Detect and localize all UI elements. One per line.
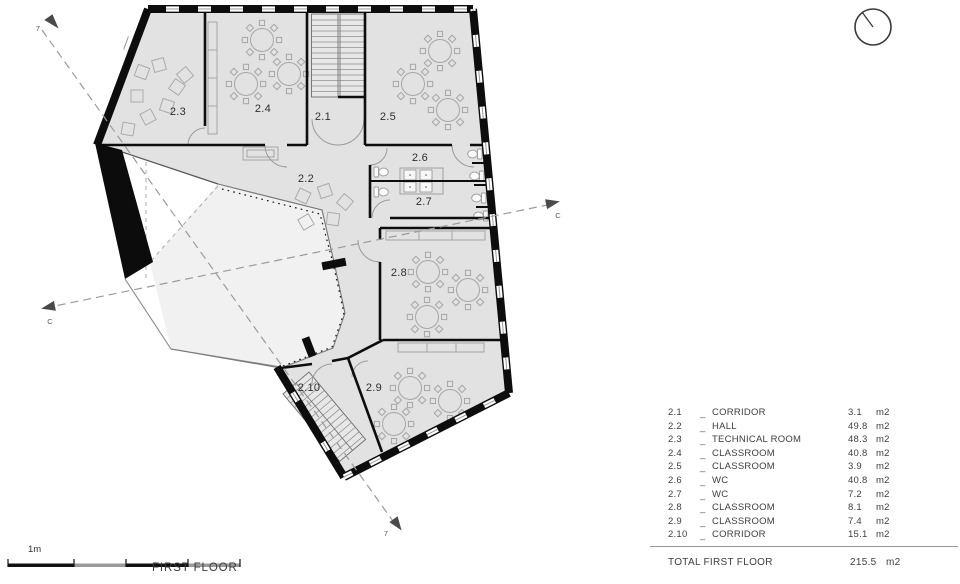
legend-room-name: CLASSROOM	[712, 515, 848, 529]
legend-separator: _	[700, 421, 712, 435]
legend-row: 2.8_CLASSROOM8.1m2	[650, 501, 958, 515]
legend-separator: _	[700, 434, 712, 448]
legend-room-name: WC	[712, 488, 848, 502]
room-label-2-2: 2.2	[298, 173, 314, 185]
legend-room-area: 7.2	[848, 488, 876, 502]
legend-separator: _	[700, 448, 712, 462]
legend-separator: _	[700, 502, 712, 516]
legend-room-number: 2.3	[668, 433, 700, 447]
room-label-2-5: 2.5	[380, 111, 396, 123]
legend-area-unit: m2	[876, 406, 958, 420]
legend-room-name: CLASSROOM	[712, 447, 848, 461]
legend-room-name: CLASSROOM	[712, 501, 848, 515]
legend-row: 2.10_CORRIDOR15.1m2	[650, 528, 958, 542]
section-arrow-7-top	[44, 14, 58, 28]
legend-separator: _	[700, 516, 712, 530]
legend-room-area: 40.8	[848, 474, 876, 488]
north-indicator-icon	[855, 9, 891, 45]
legend-row: 2.5_CLASSROOM3.9m2	[650, 460, 958, 474]
section-label-c-right: C	[555, 211, 561, 220]
legend-row: 2.6_WC40.8m2	[650, 474, 958, 488]
legend-area-unit: m2	[876, 515, 958, 529]
legend-room-number: 2.5	[668, 460, 700, 474]
legend-room-name: CORRIDOR	[712, 528, 848, 542]
legend-room-area: 15.1	[848, 528, 876, 542]
section-arrow-c-left	[41, 301, 56, 311]
legend-separator: _	[700, 489, 712, 503]
drawing-title: FIRST FLOOR	[152, 562, 238, 574]
room-label-2-4: 2.4	[255, 103, 271, 115]
legend-separator: _	[700, 475, 712, 489]
room-label-2-10: 2.10	[298, 382, 321, 394]
section-arrow-c-right	[545, 199, 560, 209]
legend-separator: _	[700, 461, 712, 475]
section-label-7-top: 7	[36, 24, 40, 33]
legend-room-name: TECHNICAL ROOM	[712, 433, 848, 447]
legend-room-name: HALL	[712, 420, 848, 434]
legend-row: 2.4_CLASSROOM40.8m2	[650, 447, 958, 461]
legend-total-row: TOTAL FIRST FLOOR 215.5 m2	[650, 556, 958, 570]
scale-label: 1m	[28, 544, 41, 555]
room-label-2-1: 2.1	[315, 111, 331, 123]
total-area: 215.5	[850, 556, 877, 570]
legend-area-unit: m2	[876, 488, 958, 502]
legend-room-name: CLASSROOM	[712, 460, 848, 474]
legend-separator: _	[700, 529, 712, 543]
legend-separator: _	[700, 407, 712, 421]
legend-room-number: 2.4	[668, 447, 700, 461]
legend-room-number: 2.6	[668, 474, 700, 488]
legend-row: 2.2_HALL49.8m2	[650, 420, 958, 434]
legend-room-number: 2.2	[668, 420, 700, 434]
legend-room-area: 7.4	[848, 515, 876, 529]
legend-room-area: 48.3	[848, 433, 876, 447]
legend-area-unit: m2	[876, 528, 958, 542]
legend-area-unit: m2	[876, 474, 958, 488]
legend-row: 2.3_TECHNICAL ROOM48.3m2	[650, 433, 958, 447]
legend-area-unit: m2	[876, 460, 958, 474]
room-label-2-6: 2.6	[412, 152, 428, 164]
legend-room-area: 49.8	[848, 420, 876, 434]
legend-area-unit: m2	[876, 433, 958, 447]
legend-table: 2.1_CORRIDOR3.1m2 2.2_HALL49.8m2 2.3_TEC…	[650, 406, 958, 542]
section-label-c-left: C	[47, 317, 53, 326]
legend-total-divider	[650, 546, 958, 547]
legend-room-area: 3.9	[848, 460, 876, 474]
room-label-2-3: 2.3	[170, 106, 186, 118]
legend-room-name: CORRIDOR	[712, 406, 848, 420]
stairs-upper	[312, 14, 366, 97]
total-area-unit: m2	[886, 556, 901, 570]
legend-room-number: 2.7	[668, 488, 700, 502]
legend-area-unit: m2	[876, 447, 958, 461]
legend-room-number: 2.8	[668, 501, 700, 515]
legend-area-unit: m2	[876, 501, 958, 515]
section-label-7-bottom: 7	[384, 529, 388, 538]
legend-room-number: 2.9	[668, 515, 700, 529]
legend-room-area: 8.1	[848, 501, 876, 515]
legend-room-area: 40.8	[848, 447, 876, 461]
room-label-2-8: 2.8	[391, 267, 407, 279]
legend-row: 2.7_WC7.2m2	[650, 488, 958, 502]
legend-room-name: WC	[712, 474, 848, 488]
legend-room-number: 2.1	[668, 406, 700, 420]
legend-row: 2.9_CLASSROOM7.4m2	[650, 515, 958, 529]
legend-area-unit: m2	[876, 420, 958, 434]
room-label-2-9: 2.9	[366, 382, 382, 394]
legend-row: 2.1_CORRIDOR3.1m2	[650, 406, 958, 420]
legend-room-number: 2.10	[668, 528, 700, 542]
room-label-2-7: 2.7	[416, 196, 432, 208]
legend-room-area: 3.1	[848, 406, 876, 420]
total-label: TOTAL FIRST FLOOR	[668, 556, 773, 570]
